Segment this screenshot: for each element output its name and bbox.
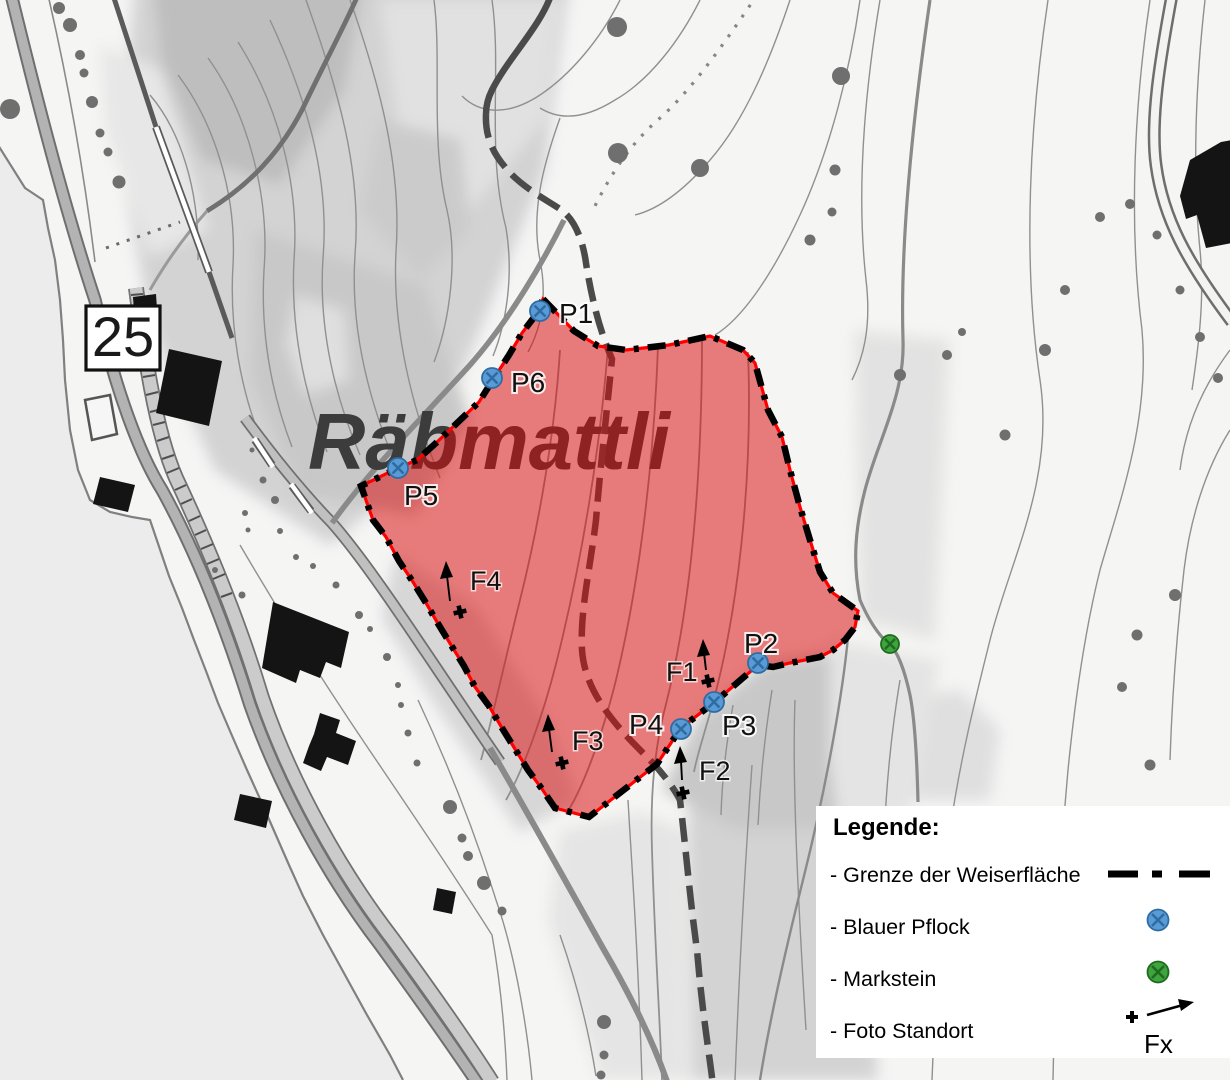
svg-text:F2: F2 [699,756,731,786]
svg-text:- Foto Standort: - Foto Standort [830,1019,973,1043]
svg-text:F3: F3 [572,726,604,756]
svg-text:Legende:: Legende: [833,814,940,841]
svg-text:- Blauer Pflock: - Blauer Pflock [830,915,970,939]
svg-text:P6: P6 [511,367,545,398]
svg-text:P2: P2 [744,628,778,659]
svg-text:F1: F1 [666,657,698,687]
svg-text:- Grenze der Weiserfläche: - Grenze der Weiserfläche [830,863,1081,887]
svg-text:25: 25 [92,305,154,368]
svg-text:F4: F4 [470,566,502,596]
svg-text:Fx: Fx [1144,1029,1173,1059]
svg-text:P1: P1 [559,298,593,329]
svg-text:- Markstein: - Markstein [830,967,936,991]
svg-text:P5: P5 [404,480,438,511]
svg-text:P3: P3 [722,710,756,741]
svg-text:P4: P4 [629,709,663,740]
